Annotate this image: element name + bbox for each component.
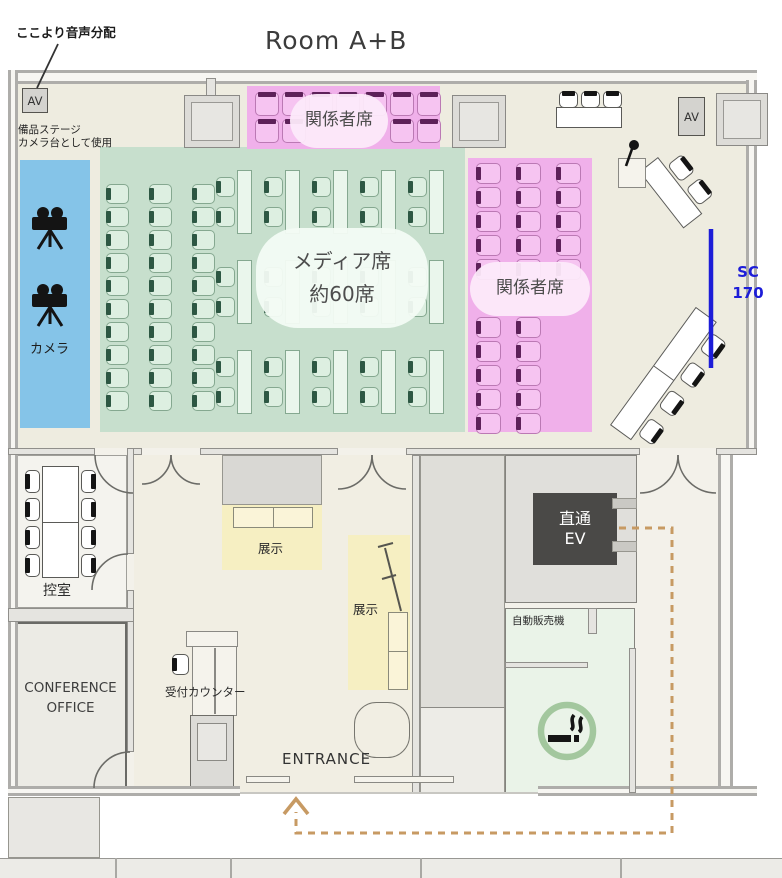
reception-label: 受付カウンター bbox=[165, 684, 246, 700]
audio-distribution-note: ここより音声分配 bbox=[16, 22, 116, 41]
stage-right-table-upper bbox=[639, 157, 702, 229]
chair bbox=[516, 317, 541, 338]
elevator-label-2: EV bbox=[564, 529, 585, 549]
conference-office-line1: CONFERENCE bbox=[14, 678, 127, 698]
floor-plan: AV AV 直通 EV bbox=[0, 0, 782, 878]
chair bbox=[360, 387, 379, 407]
chair bbox=[264, 177, 283, 197]
chair bbox=[106, 230, 129, 250]
chair bbox=[603, 91, 622, 108]
chair bbox=[408, 357, 427, 377]
chair bbox=[476, 211, 501, 232]
chair bbox=[556, 211, 581, 232]
chair bbox=[476, 163, 501, 184]
vending-label: 自動販売機 bbox=[512, 613, 565, 628]
table bbox=[381, 350, 396, 414]
chair bbox=[106, 391, 129, 411]
vip-right-pill: 関係者席 bbox=[470, 262, 590, 316]
smoking-area-icon bbox=[535, 699, 599, 763]
elevator-door-jamb-top bbox=[612, 498, 637, 509]
elevator-label-1: 直通 bbox=[559, 509, 591, 529]
stage-note-line2: カメラ台として使用 bbox=[18, 137, 112, 150]
chair bbox=[581, 91, 600, 108]
chair bbox=[516, 187, 541, 208]
chair bbox=[417, 119, 441, 143]
chair bbox=[360, 357, 379, 377]
video-camera-icon bbox=[28, 282, 72, 330]
page-title: Room A+B bbox=[265, 26, 407, 55]
av-box-right: AV bbox=[678, 97, 705, 136]
chair bbox=[149, 207, 172, 227]
wall-bottom-right bbox=[538, 786, 757, 796]
waiting-room-label: 控室 bbox=[43, 580, 71, 600]
chair bbox=[312, 177, 331, 197]
vip-top-label: 関係者席 bbox=[305, 110, 373, 131]
chair bbox=[81, 554, 96, 577]
screen-label-line1: SC bbox=[722, 262, 774, 283]
chair bbox=[516, 235, 541, 256]
entrance-bar-right bbox=[354, 776, 454, 783]
chair bbox=[149, 322, 172, 342]
chair bbox=[476, 187, 501, 208]
chair bbox=[360, 207, 379, 227]
chair bbox=[192, 253, 215, 273]
chair bbox=[516, 163, 541, 184]
chair bbox=[408, 207, 427, 227]
chair bbox=[192, 230, 215, 250]
chair bbox=[192, 345, 215, 365]
chair bbox=[417, 92, 441, 116]
chair bbox=[192, 322, 215, 342]
media-seats-pill: メディア席 約60席 bbox=[256, 228, 428, 328]
chair bbox=[476, 365, 501, 386]
chair bbox=[192, 368, 215, 388]
chair bbox=[216, 267, 235, 287]
chair bbox=[106, 207, 129, 227]
chair bbox=[408, 177, 427, 197]
table bbox=[429, 170, 444, 234]
av-right-label: AV bbox=[684, 110, 699, 124]
wall-hall-bottom-4 bbox=[406, 448, 640, 455]
chair bbox=[192, 299, 215, 319]
table bbox=[381, 170, 396, 234]
wall-top bbox=[8, 70, 757, 84]
table bbox=[42, 466, 79, 578]
table bbox=[388, 612, 408, 690]
entrance-threshold-line bbox=[240, 792, 538, 794]
smoking-room-stub-right bbox=[629, 648, 636, 793]
chair bbox=[264, 387, 283, 407]
chair bbox=[390, 92, 414, 116]
chair bbox=[556, 163, 581, 184]
table bbox=[429, 350, 444, 414]
chair bbox=[25, 526, 40, 549]
chair bbox=[312, 357, 331, 377]
table bbox=[285, 170, 300, 234]
entrance-label: ENTRANCE bbox=[282, 750, 371, 768]
entrance-bar-left bbox=[246, 776, 290, 783]
wall-hall-bottom-3 bbox=[200, 448, 338, 455]
conference-office-line2: OFFICE bbox=[14, 698, 127, 718]
chair bbox=[106, 184, 129, 204]
chair bbox=[149, 368, 172, 388]
chair bbox=[390, 119, 414, 143]
vip-top-pill: 関係者席 bbox=[290, 94, 388, 148]
table bbox=[285, 350, 300, 414]
chair bbox=[516, 365, 541, 386]
video-camera-icon bbox=[28, 205, 72, 253]
wall-hall-bottom-5 bbox=[716, 448, 757, 455]
pillar-stage-left bbox=[184, 95, 240, 148]
chair bbox=[106, 253, 129, 273]
chair bbox=[81, 526, 96, 549]
chair bbox=[25, 554, 40, 577]
smoking-room-partition bbox=[505, 662, 588, 668]
chair bbox=[556, 235, 581, 256]
chair bbox=[216, 357, 235, 377]
chair bbox=[312, 387, 331, 407]
wall-right-lower bbox=[718, 448, 733, 793]
chair bbox=[516, 211, 541, 232]
chair bbox=[106, 299, 129, 319]
table bbox=[237, 260, 252, 324]
chair bbox=[312, 207, 331, 227]
chair bbox=[216, 297, 235, 317]
furniture-layer bbox=[0, 0, 782, 878]
chair bbox=[106, 322, 129, 342]
door-cabinet-window bbox=[197, 723, 227, 761]
chair bbox=[149, 253, 172, 273]
chair bbox=[149, 345, 172, 365]
chair bbox=[476, 413, 501, 434]
chair bbox=[192, 207, 215, 227]
chair bbox=[216, 387, 235, 407]
chair bbox=[476, 235, 501, 256]
table bbox=[237, 350, 252, 414]
chair bbox=[476, 317, 501, 338]
media-seats-line2: 約60席 bbox=[309, 282, 374, 307]
chair bbox=[106, 276, 129, 296]
chair bbox=[81, 470, 96, 493]
chair bbox=[559, 91, 578, 108]
table bbox=[556, 107, 622, 128]
wall-hall-bottom-1 bbox=[8, 448, 95, 455]
smoking-room-stub-top bbox=[588, 608, 597, 634]
chair bbox=[149, 276, 172, 296]
chair bbox=[81, 498, 96, 521]
table bbox=[233, 507, 313, 528]
media-seats-line1: メディア席 bbox=[293, 249, 392, 274]
av-box-left: AV bbox=[22, 88, 48, 113]
chair bbox=[516, 389, 541, 410]
chair bbox=[556, 187, 581, 208]
chair bbox=[476, 389, 501, 410]
chair bbox=[149, 391, 172, 411]
stage-note: 備品ステージ カメラ台として使用 bbox=[18, 124, 112, 150]
chair bbox=[172, 654, 189, 675]
table bbox=[429, 260, 444, 324]
stage-right-table-lower bbox=[610, 307, 717, 440]
elevator-box: 直通 EV bbox=[533, 493, 617, 565]
chair bbox=[25, 470, 40, 493]
chair bbox=[216, 207, 235, 227]
wall-hall-bottom-2 bbox=[133, 448, 142, 455]
chair bbox=[149, 299, 172, 319]
wall-waiting-office-divider bbox=[8, 608, 134, 622]
chair bbox=[476, 341, 501, 362]
chair bbox=[149, 230, 172, 250]
chair bbox=[192, 276, 215, 296]
stage-note-line1: 備品ステージ bbox=[18, 124, 112, 137]
exhibit1-label: 展示 bbox=[258, 538, 283, 557]
chair bbox=[216, 177, 235, 197]
chair bbox=[360, 177, 379, 197]
pillar-stage-right bbox=[452, 95, 506, 148]
chair bbox=[264, 207, 283, 227]
chair bbox=[255, 92, 279, 116]
chair bbox=[264, 357, 283, 377]
exhibit2-label: 展示 bbox=[353, 599, 378, 618]
table bbox=[333, 350, 348, 414]
camera-label: カメラ bbox=[30, 338, 69, 357]
chair bbox=[106, 345, 129, 365]
chair bbox=[516, 341, 541, 362]
wall-left-rooms-1 bbox=[127, 448, 134, 554]
conference-office-label: CONFERENCE OFFICE bbox=[14, 678, 127, 718]
screen-label: SC 170 bbox=[722, 262, 774, 304]
chair bbox=[192, 391, 215, 411]
chair bbox=[149, 184, 172, 204]
reception-counter-divider bbox=[214, 648, 216, 714]
pillar-top-right bbox=[716, 93, 768, 146]
vip-right-label: 関係者席 bbox=[496, 278, 564, 299]
av-left-label: AV bbox=[28, 94, 43, 108]
chair bbox=[25, 498, 40, 521]
chair bbox=[106, 368, 129, 388]
wall-bottom-left bbox=[8, 786, 240, 796]
chair bbox=[192, 184, 215, 204]
chair bbox=[516, 413, 541, 434]
screen-label-line2: 170 bbox=[722, 283, 774, 304]
chair bbox=[255, 119, 279, 143]
table bbox=[333, 170, 348, 234]
microphone-icon bbox=[620, 138, 646, 170]
wall-foyer-ev bbox=[412, 455, 420, 793]
chair bbox=[408, 387, 427, 407]
table bbox=[237, 170, 252, 234]
elevator-door-jamb-bottom bbox=[612, 541, 637, 552]
